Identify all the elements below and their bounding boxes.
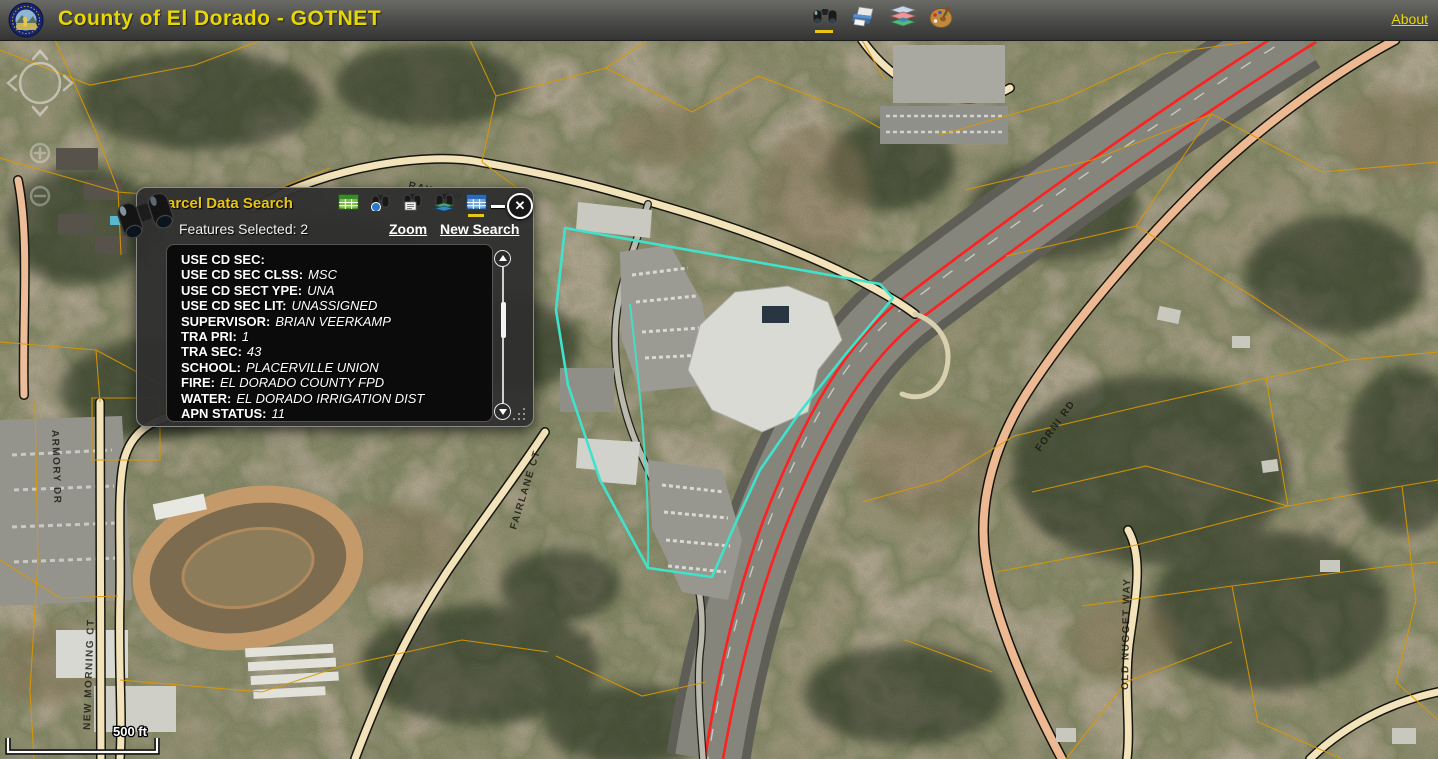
zoom-link[interactable]: Zoom: [389, 221, 427, 237]
binoculars-map-icon: [434, 193, 455, 211]
layers-tool-button[interactable]: [890, 5, 916, 33]
resize-grip[interactable]: [511, 408, 527, 422]
features-selected-text: Features Selected: 2: [179, 221, 308, 237]
scroll-down-button[interactable]: [494, 403, 511, 420]
attribute-row: APN STATUS:11: [181, 406, 492, 421]
attribute-row: SCHOOL:PLACERVILLE UNION: [181, 360, 492, 375]
map-layers-icon: [890, 5, 916, 29]
attribute-row: TRA PRI:1: [181, 329, 492, 344]
header-toolbar: [812, 5, 955, 33]
attribute-row: TRA SEC:43: [181, 344, 492, 359]
identify-search-button[interactable]: [370, 193, 391, 217]
attribute-row: SUPERVISOR:BRIAN VEERKAMP: [181, 314, 492, 329]
map-search-button[interactable]: [434, 193, 455, 217]
application-window: RAY LAWYER DR NEW MORNING CT ARMORY DR F…: [0, 0, 1438, 759]
printer-icon: [851, 5, 877, 29]
attribute-row: USE CD SEC LIT:UNASSIGNED: [181, 298, 492, 313]
app-header: County of El Dorado - GOTNET: [0, 0, 1438, 41]
attribute-row: USE CD SEC CLSS:MSC: [181, 267, 492, 282]
report-search-button[interactable]: [402, 193, 423, 217]
scroll-up-button[interactable]: [494, 250, 511, 267]
panel-scrollbar[interactable]: [493, 250, 513, 420]
active-panel-tab-indicator: [468, 214, 484, 217]
close-button[interactable]: ✕: [507, 193, 533, 219]
attribute-row: USE CD SEC:: [181, 252, 492, 267]
panel-links: Zoom New Search: [389, 221, 528, 237]
green-table-icon: [338, 193, 359, 211]
page-title: County of El Dorado - GOTNET: [58, 7, 381, 31]
attribute-row: WATER:EL DORADO IRRIGATION DIST: [181, 391, 492, 406]
palette-icon: [929, 5, 955, 29]
county-seal-logo: [8, 2, 44, 38]
scrollbar-thumb[interactable]: [501, 302, 506, 338]
parcel-attributes-list[interactable]: USE CD SEC: USE CD SEC CLSS:MSC USE CD S…: [166, 244, 493, 422]
blue-table-icon: [466, 193, 487, 211]
draw-tool-button[interactable]: [929, 5, 955, 33]
attribute-row: FIRE:EL DORADO COUNTY FPD: [181, 375, 492, 390]
active-tool-indicator: [815, 30, 833, 33]
new-search-link[interactable]: New Search: [440, 221, 519, 237]
minimize-button[interactable]: [491, 205, 505, 208]
attributes-table-button[interactable]: [466, 193, 487, 217]
panel-toolbar: [338, 193, 487, 217]
attribute-row: USE CD SECT YPE:UNA: [181, 283, 492, 298]
parcel-data-search-panel[interactable]: Parcel Data Search: [136, 187, 534, 427]
binoculars-decoration-icon: [113, 190, 181, 250]
about-link[interactable]: About: [1391, 11, 1428, 27]
results-table-button[interactable]: [338, 193, 359, 217]
street-old-nugget: OLD NUGGET WAY: [1120, 578, 1133, 690]
find-tool-button[interactable]: [812, 5, 838, 33]
binoculars-select-icon: [370, 193, 391, 211]
scale-label: 500 ft: [113, 724, 148, 739]
binoculars-report-icon: [402, 193, 423, 211]
binoculars-icon: [812, 5, 838, 29]
print-tool-button[interactable]: [851, 5, 877, 33]
